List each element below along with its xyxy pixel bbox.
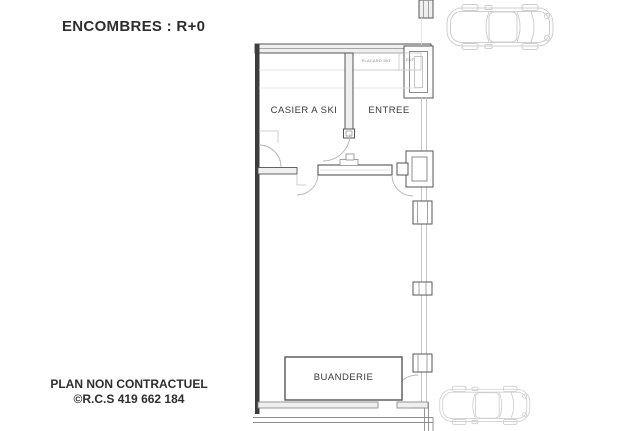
annotation-edf: EDF — [400, 57, 420, 62]
pilaster — [397, 151, 433, 187]
footer-disclaimer: PLAN NON CONTRACTUEL ©R.C.S 419 662 184 — [50, 377, 208, 407]
page-title: ENCOMBRES : R+0 — [62, 18, 205, 35]
bottom-walls — [253, 402, 433, 431]
door-hinge — [344, 129, 355, 138]
room-label-entree: ENTREE — [358, 105, 420, 116]
wall-box-upper — [413, 201, 432, 224]
floor-plan-drawing — [0, 0, 640, 431]
right-wall-stub — [419, 0, 433, 18]
middle-wall — [258, 154, 413, 196]
outer-walls — [255, 0, 433, 414]
wall-box-middle — [413, 282, 432, 295]
left-wall-door-arc — [259, 145, 281, 167]
top-right-corner — [404, 46, 433, 98]
left-wall-fixtures — [259, 131, 281, 167]
room-label-buanderie: BUANDERIE — [285, 372, 402, 383]
car-bottom-icon — [440, 386, 530, 424]
footer-line-2: ©R.C.S 419 662 184 — [50, 392, 208, 407]
car-top-icon — [447, 5, 553, 50]
wall-box-lower — [413, 354, 432, 372]
door-hinge — [346, 154, 354, 160]
left-wall — [255, 44, 260, 414]
left-door-arc — [297, 174, 318, 195]
footer-line-1: PLAN NON CONTRACTUEL — [50, 377, 208, 392]
room-label-casier-a-ski: CASIER A SKI — [258, 105, 350, 116]
floor-plan-page: ENCOMBRES : R+0 CASIER A SKI ENTREE BUAN… — [0, 0, 640, 431]
annotation-placard-ski: PLACARD SKI — [353, 58, 399, 63]
